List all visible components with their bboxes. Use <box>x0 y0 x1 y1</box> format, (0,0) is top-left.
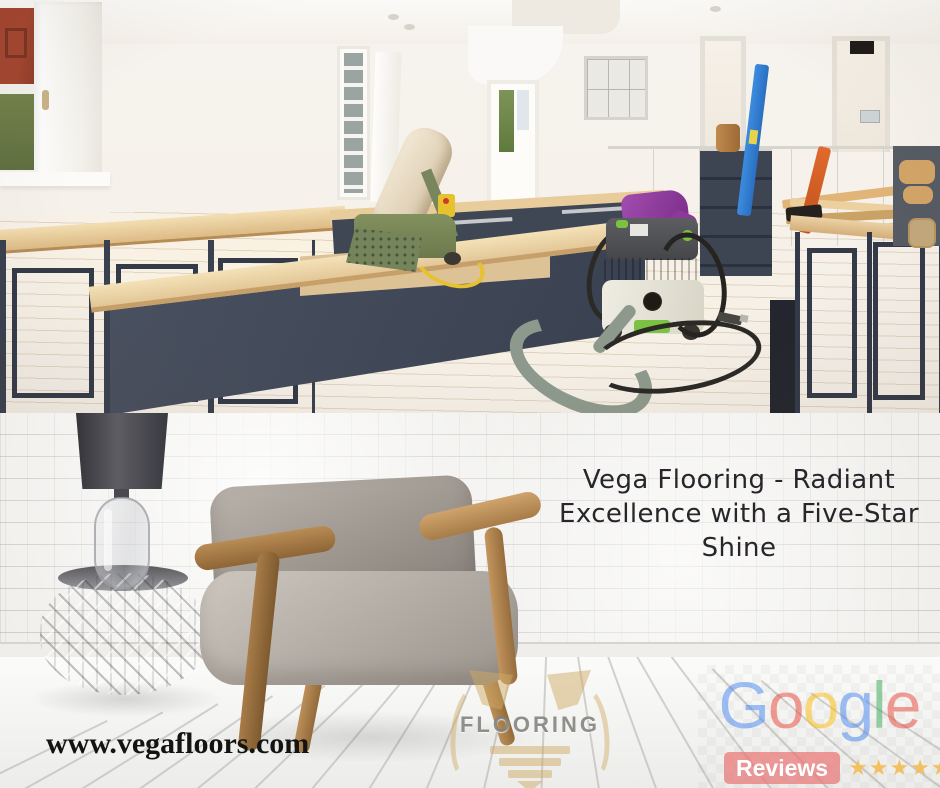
five-star-rating-icon: ★★★★★ <box>848 756 940 781</box>
headline: Vega Flooring - Radiant Excellence with … <box>543 463 935 565</box>
silver-faceted-side-table <box>40 573 208 695</box>
logo-stripe <box>499 758 561 766</box>
lamp-glass-highlight <box>104 509 112 571</box>
website-url: www.vegafloors.com <box>46 727 376 761</box>
reviews-rating-row: Reviews ★★★★★ <box>724 751 940 785</box>
logo-stripe-tip <box>517 781 543 788</box>
google-letter: o <box>803 668 838 742</box>
logo-flooring-label: FLOORING <box>455 712 605 738</box>
showroom-photo: Vega Flooring - Radiant Excellence with … <box>0 413 940 788</box>
logo-stripe <box>508 770 552 778</box>
google-letter: o <box>768 668 803 742</box>
google-letter: l <box>872 668 885 742</box>
google-logo: Google <box>698 659 940 751</box>
google-letter: g <box>837 668 872 742</box>
lamp-shade <box>76 413 168 489</box>
google-letter: e <box>885 668 920 742</box>
headline-line: Vega Flooring - Radiant <box>543 463 935 497</box>
google-reviews-block: Google Reviews ★★★★★ <box>698 665 940 788</box>
lamp-glass-base <box>94 497 150 589</box>
reviews-badge: Reviews <box>724 752 840 784</box>
logo-stripe <box>490 746 570 754</box>
vega-flooring-promo: Vega Flooring - Radiant Excellence with … <box>0 0 940 788</box>
headline-line: Shine <box>543 531 935 565</box>
renovation-photo <box>0 0 940 413</box>
photo-vignette <box>0 0 940 413</box>
vega-flooring-watermark-logo: FLOORING <box>455 668 605 788</box>
google-letter: G <box>719 668 768 742</box>
headline-line: Excellence with a Five-Star <box>543 497 935 531</box>
